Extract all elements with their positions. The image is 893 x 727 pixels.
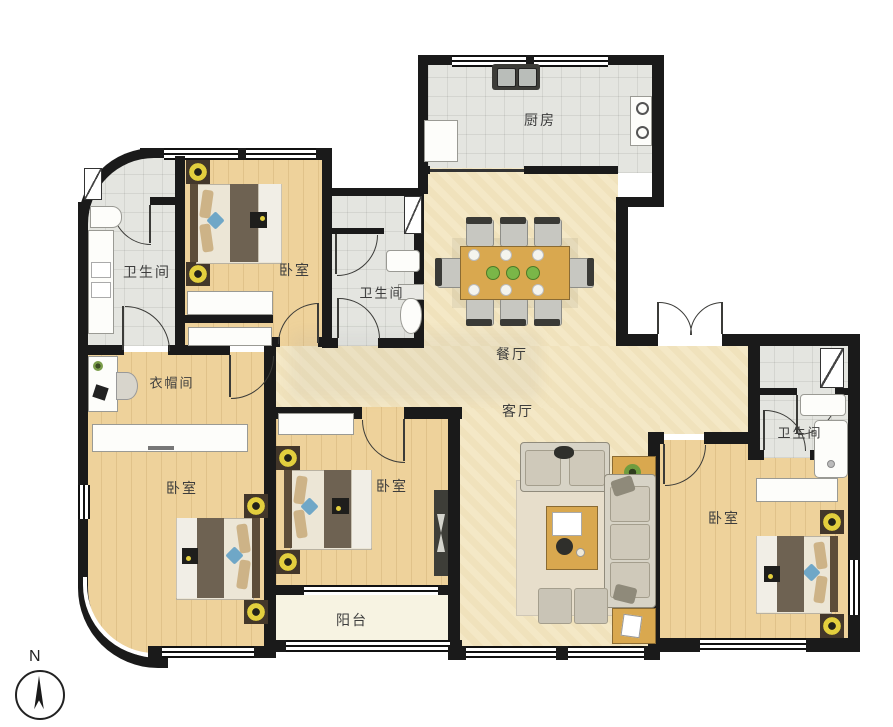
wall xyxy=(556,646,568,660)
lamp xyxy=(189,265,207,283)
lamp xyxy=(823,617,841,635)
lamp xyxy=(247,497,265,515)
drain xyxy=(827,460,835,468)
plate xyxy=(500,284,512,296)
window-kitchen-2 xyxy=(534,55,608,67)
wall xyxy=(238,148,246,160)
stove-burner xyxy=(636,102,649,115)
bed-headboard xyxy=(190,184,198,262)
book xyxy=(621,614,643,638)
wall-bed-middle-east xyxy=(448,407,460,648)
door-leaf xyxy=(122,306,124,350)
wall-bath-right-partition xyxy=(755,388,797,395)
door-leaf xyxy=(337,298,339,338)
room-label-bed-top: 卧室 xyxy=(279,260,311,280)
dining-chair-back xyxy=(534,319,560,326)
dining-chair-back xyxy=(435,258,442,286)
green-dish xyxy=(486,266,500,280)
wardrobe xyxy=(187,291,273,315)
entry-door-leaf-right xyxy=(721,302,723,334)
ottoman xyxy=(574,588,608,624)
stove-burner xyxy=(636,126,649,139)
kettle xyxy=(556,538,573,555)
wall xyxy=(524,166,618,174)
window-bed-middle-balcony xyxy=(304,585,438,595)
window-curve-bottom-left xyxy=(83,577,157,657)
wall xyxy=(183,315,273,323)
door-leaf xyxy=(335,234,337,274)
room-label-cloakroom: 衣帽间 xyxy=(149,373,194,392)
dining-chair-back xyxy=(500,217,526,224)
wall xyxy=(322,156,332,346)
wall xyxy=(168,345,230,355)
room-label-kitchen: 厨房 xyxy=(524,110,556,130)
fridge xyxy=(424,120,458,162)
wall xyxy=(418,55,452,65)
wall xyxy=(448,646,466,660)
duvet xyxy=(777,536,804,612)
wall xyxy=(86,345,124,355)
toilet xyxy=(90,206,122,228)
dining-chair-back xyxy=(587,258,594,286)
bed-headboard xyxy=(830,536,838,612)
sofa-cushion xyxy=(610,524,650,560)
toilet-bowl xyxy=(400,298,422,334)
sink-bowl xyxy=(91,262,111,278)
wall xyxy=(806,638,860,652)
sink xyxy=(386,250,420,272)
wall xyxy=(378,338,424,348)
wall xyxy=(322,188,424,196)
room-label-bath-right: 卫生间 xyxy=(777,423,822,442)
wall xyxy=(272,585,304,595)
kitchen-floor-line xyxy=(424,169,526,172)
wardrobe xyxy=(278,413,354,435)
tray-dot xyxy=(186,556,191,561)
wall xyxy=(704,432,748,444)
wall xyxy=(322,338,338,348)
kitchen-sink-basin xyxy=(518,68,537,87)
wall xyxy=(648,432,664,444)
ottoman xyxy=(538,588,572,624)
window-bed-right-east xyxy=(848,560,860,615)
plate xyxy=(532,284,544,296)
door-leaf xyxy=(149,205,151,243)
tray-dot xyxy=(260,216,265,221)
compass-label: N xyxy=(29,648,41,666)
lamp xyxy=(279,553,297,571)
wall xyxy=(722,334,860,346)
window-bed-right-south xyxy=(700,638,806,650)
desk-chair xyxy=(116,372,138,400)
room-label-dining: 餐厅 xyxy=(496,344,528,364)
room-label-bed-middle: 卧室 xyxy=(376,476,408,496)
window-bath-top-left xyxy=(84,168,102,200)
hall-cabinet xyxy=(188,327,272,346)
desk-plant xyxy=(93,361,103,371)
sink xyxy=(800,394,846,416)
tray-dot xyxy=(768,574,773,579)
green-dish xyxy=(506,266,520,280)
sink-bowl xyxy=(91,282,111,298)
window-bath-right xyxy=(820,348,844,388)
door-leaf xyxy=(317,303,319,343)
wall-left-outer xyxy=(78,202,88,485)
window-living-1 xyxy=(466,646,556,658)
entry-door-leaf-left xyxy=(657,302,659,334)
cup xyxy=(576,548,585,557)
wall-bath-right-west xyxy=(748,346,760,450)
plate xyxy=(468,249,480,261)
room-label-balcony: 阳台 xyxy=(336,610,368,630)
door-leaf xyxy=(663,444,665,484)
dining-chair-back xyxy=(500,319,526,326)
lamp xyxy=(823,513,841,531)
window-left-wall xyxy=(78,485,90,519)
wall xyxy=(748,450,764,460)
wall xyxy=(652,55,664,205)
floor-plan-canvas: 厨房 卫生间 卧室 卫生间 餐厅 客厅 衣帽间 卧室 卧室 阳台 卫生间 卧室 … xyxy=(0,0,893,727)
window-bed-top-2 xyxy=(246,148,316,160)
wall xyxy=(644,646,660,660)
bed-headboard xyxy=(252,518,260,598)
lamp xyxy=(247,603,265,621)
bed-headboard xyxy=(284,470,292,548)
room-label-living: 客厅 xyxy=(502,401,534,421)
loveseat-cushion xyxy=(569,450,605,486)
door-leaf xyxy=(763,410,765,450)
dining-chair-back xyxy=(534,217,560,224)
room-label-bed-left: 卧室 xyxy=(166,478,198,498)
room-label-bath-middle: 卫生间 xyxy=(359,283,404,302)
plate xyxy=(500,249,512,261)
wall xyxy=(140,148,164,158)
coffee-table-tray xyxy=(552,512,582,536)
lamp xyxy=(279,449,297,467)
window-bed-left-south xyxy=(162,646,254,658)
room-label-bath-top-left: 卫生间 xyxy=(123,262,171,282)
kitchen-sink-basin xyxy=(497,68,516,87)
wall xyxy=(148,646,162,658)
duvet xyxy=(197,518,224,598)
wall xyxy=(438,585,460,595)
duvet-fold xyxy=(351,470,372,548)
window-balcony xyxy=(286,640,450,652)
green-dish xyxy=(526,266,540,280)
dining-chair-back xyxy=(466,217,492,224)
wall xyxy=(616,334,658,346)
wall xyxy=(418,168,428,194)
wardrobe xyxy=(756,478,838,502)
wall-bath-top-left-partition xyxy=(150,197,178,205)
plate xyxy=(468,284,480,296)
plate xyxy=(532,249,544,261)
door-leaf xyxy=(229,355,231,397)
room-label-bed-right: 卧室 xyxy=(708,508,740,528)
tray-dot xyxy=(336,506,341,511)
window-living-2 xyxy=(568,646,648,658)
door-leaf xyxy=(403,419,405,461)
lamp xyxy=(189,163,207,181)
cloak-cabinet-handle xyxy=(148,446,174,450)
window-bath-middle xyxy=(404,196,422,234)
loveseat-item xyxy=(554,446,574,459)
dining-chair-back xyxy=(466,319,492,326)
wall-dining-east xyxy=(616,205,628,337)
wall xyxy=(272,640,286,652)
